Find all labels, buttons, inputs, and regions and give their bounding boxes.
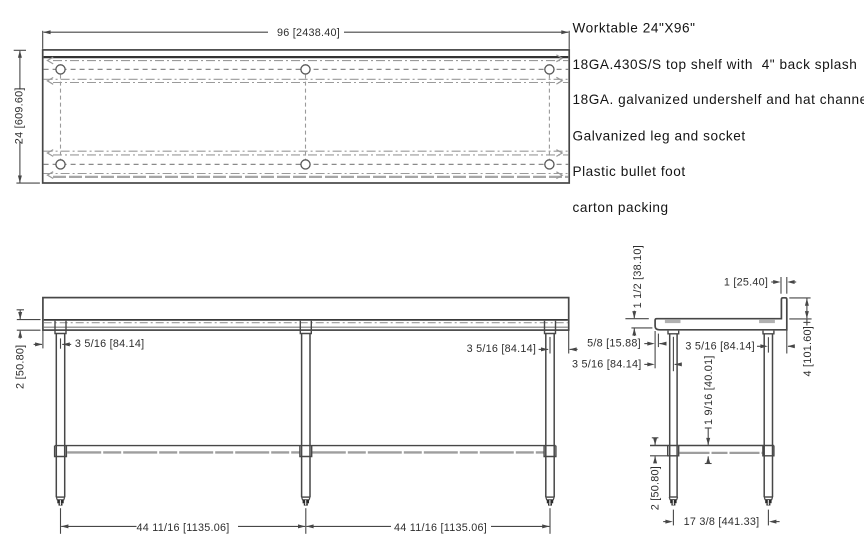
svg-text:17 3/8 [441.33]: 17 3/8 [441.33] — [684, 516, 760, 528]
svg-text:4 [101.60]: 4 [101.60] — [802, 326, 814, 377]
svg-text:18GA.430S/S top shelf with 4": 18GA.430S/S top shelf with 4" back splas… — [573, 57, 858, 72]
svg-text:2 [50.80]: 2 [50.80] — [649, 466, 661, 510]
svg-text:5/8 [15.88]: 5/8 [15.88] — [587, 337, 641, 349]
svg-text:Plastic bullet foot: Plastic bullet foot — [573, 164, 686, 179]
svg-text:44 11/16 [1135.06]: 44 11/16 [1135.06] — [137, 522, 230, 534]
svg-text:Galvanized leg and socket: Galvanized leg and socket — [573, 129, 746, 144]
svg-text:carton packing: carton packing — [573, 200, 669, 215]
svg-text:3 5/16 [84.14]: 3 5/16 [84.14] — [467, 343, 537, 355]
svg-text:96 [2438.40]: 96 [2438.40] — [277, 27, 340, 39]
svg-text:24 [609.60]: 24 [609.60] — [14, 87, 26, 144]
svg-text:2 [50.80]: 2 [50.80] — [14, 345, 26, 389]
svg-text:1 1/2 [38.10]: 1 1/2 [38.10] — [632, 245, 644, 308]
svg-text:3 5/16 [84.14]: 3 5/16 [84.14] — [685, 341, 755, 353]
svg-text:44 11/16 [1135.06]: 44 11/16 [1135.06] — [394, 522, 487, 534]
svg-text:1 9/16 [40.01]: 1 9/16 [40.01] — [703, 355, 715, 425]
svg-text:Worktable 24"X96": Worktable 24"X96" — [573, 21, 696, 36]
svg-text:18GA. galvanized undershelf an: 18GA. galvanized undershelf and hat chan… — [573, 92, 864, 107]
svg-text:1 [25.40]: 1 [25.40] — [724, 277, 768, 289]
svg-text:3 5/16 [84.14]: 3 5/16 [84.14] — [75, 338, 145, 350]
svg-text:3 5/16 [84.14]: 3 5/16 [84.14] — [572, 358, 642, 370]
